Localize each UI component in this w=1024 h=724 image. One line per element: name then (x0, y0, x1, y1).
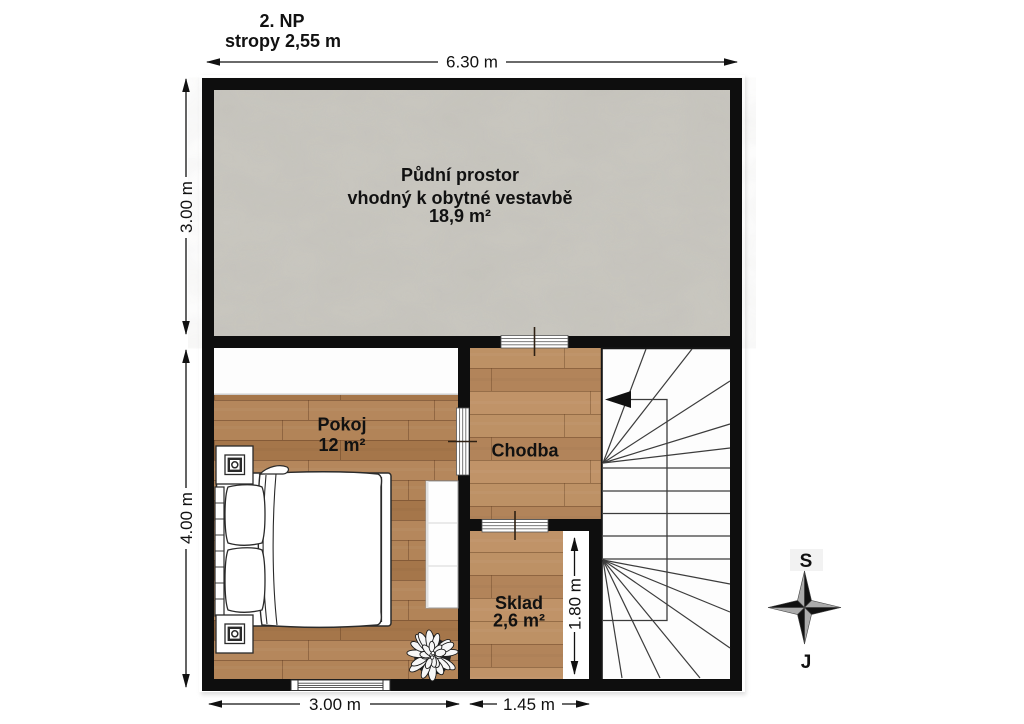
svg-text:J: J (801, 652, 812, 673)
svg-text:6.30 m: 6.30 m (446, 53, 498, 72)
svg-text:3.00 m: 3.00 m (177, 181, 196, 233)
svg-text:1.45 m: 1.45 m (503, 695, 555, 714)
svg-text:2. NP: 2. NP (259, 11, 304, 31)
svg-text:3.00 m: 3.00 m (309, 695, 361, 714)
svg-text:Chodba: Chodba (492, 441, 560, 461)
svg-text:Půdní prostor: Půdní prostor (401, 165, 519, 185)
svg-text:Pokoj: Pokoj (317, 415, 366, 435)
svg-text:4.00 m: 4.00 m (177, 492, 196, 544)
svg-text:stropy 2,55 m: stropy 2,55 m (225, 31, 341, 51)
svg-text:12 m²: 12 m² (318, 435, 365, 455)
svg-text:S: S (800, 551, 813, 572)
svg-text:18,9 m²: 18,9 m² (429, 206, 491, 226)
svg-text:vhodný k obytné vestavbě: vhodný k obytné vestavbě (347, 188, 572, 208)
svg-text:1.80 m: 1.80 m (566, 578, 585, 630)
svg-text:2,6 m²: 2,6 m² (493, 611, 545, 631)
